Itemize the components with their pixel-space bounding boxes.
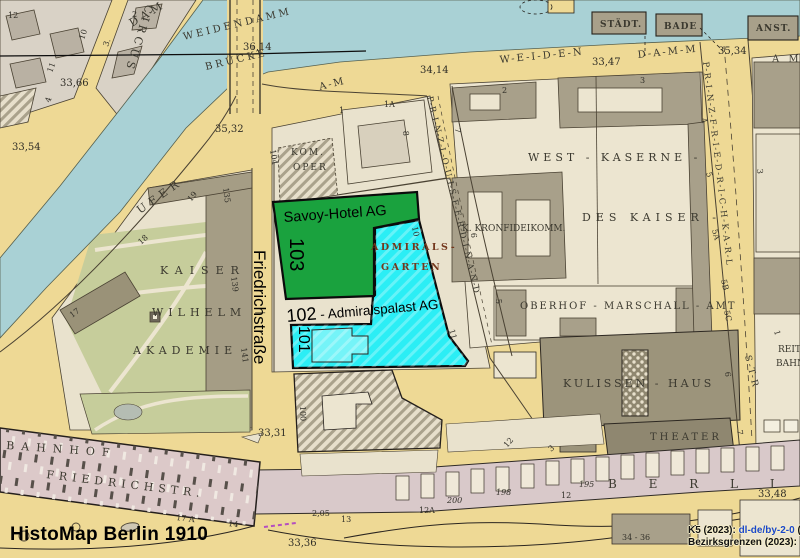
elevation: 33,48: [758, 489, 787, 500]
parcel-102-number: 102: [286, 303, 318, 326]
house-number: 3: [640, 76, 645, 85]
place-kom: KOM.: [291, 148, 325, 158]
place-reit: REIT: [778, 345, 800, 355]
attribution-license-link[interactable]: dl-de/by-2-0: [739, 525, 795, 536]
house-number: 3: [755, 168, 764, 174]
house-number: 12: [8, 11, 18, 20]
house-number: 6: [723, 371, 732, 377]
house-number: 12: [561, 491, 571, 500]
elevation: 35,34: [718, 46, 747, 57]
elevation: 33,36: [288, 538, 317, 549]
place-akademie: AKADEMIE: [132, 344, 237, 357]
house-number: 7: [453, 128, 462, 134]
attribution: K5 (2023): dl-de/by-2-0 ( Bezirksgrenzen…: [688, 525, 800, 548]
house-number: 14: [228, 519, 239, 529]
attribution-bezirksgrenzen: Bezirksgrenzen (2023):: [688, 537, 797, 548]
map-viewport[interactable]: CIRCUS DAM WEIDENDAMMER BRÜCKE W-E-I-D-E…: [0, 0, 800, 558]
house-number: 7: [735, 429, 744, 435]
place-des-kaiser: DES KAISER -: [582, 211, 721, 224]
house-number: 1: [339, 106, 344, 115]
place-anst: ANST.: [755, 24, 791, 34]
elevation: 34,14: [420, 65, 449, 76]
elevation: 33,47: [592, 57, 621, 68]
place-oper: OPER: [293, 163, 328, 173]
place-theater: THEATER: [650, 432, 722, 443]
parcel-101-number-label: 101: [295, 326, 312, 353]
house-number: 1A: [384, 100, 395, 109]
station-garden: [80, 390, 250, 434]
street-am-right: A M: [771, 54, 800, 65]
histomap-canvas: CIRCUS DAM WEIDENDAMMER BRÜCKE W-E-I-D-E…: [0, 0, 800, 558]
histomap-title: HistoMap Berlin 1910: [10, 524, 208, 546]
place-bahn: BAHN: [776, 359, 800, 369]
house-number: 12A: [419, 506, 435, 515]
attribution-k5: K5 (2023):: [688, 525, 739, 536]
attribution-paren: (: [795, 525, 800, 536]
house-number: 2: [132, 10, 137, 19]
house-number: 195: [579, 480, 594, 489]
parcel-103-number-label: 103: [285, 238, 307, 271]
friedrichstrasse-modern-label: Friedrichstraße: [250, 250, 269, 364]
house-number: 13: [341, 515, 351, 524]
elevation: 33,66: [60, 78, 89, 89]
attribution-line1: K5 (2023): dl-de/by-2-0 (: [688, 525, 800, 537]
place-oberhof: OBERHOF - MARSCHALL - AMT: [520, 301, 737, 312]
block-east: [752, 54, 800, 452]
elevation: 35,32: [215, 124, 244, 135]
place-admirals: ADMIRALS-: [370, 242, 457, 253]
place-kulissen: KULISSEN - HAUS: [563, 377, 714, 390]
place-garten: GARTEN: [381, 262, 442, 273]
attribution-line2: Bezirksgrenzen (2023):: [688, 537, 800, 549]
house-number: 6: [469, 233, 478, 239]
elevation: 33,31: [258, 428, 287, 439]
house-number: 100: [298, 406, 308, 422]
elevation: 33,54: [12, 142, 41, 153]
place-kaiser: KAISER: [160, 264, 246, 277]
elevation: 36,14: [243, 42, 272, 53]
house-number: 34 - 36: [622, 533, 650, 542]
house-number: 2,05: [312, 509, 330, 518]
place-bade: BADE: [664, 22, 697, 32]
place-west-kaserne: WEST - KASERNE -: [528, 151, 701, 164]
house-number: 8: [401, 130, 410, 136]
house-number: 200: [446, 496, 462, 505]
house-number: 2: [502, 86, 507, 95]
house-number: 5: [494, 299, 503, 305]
house-number: 198: [496, 488, 511, 497]
